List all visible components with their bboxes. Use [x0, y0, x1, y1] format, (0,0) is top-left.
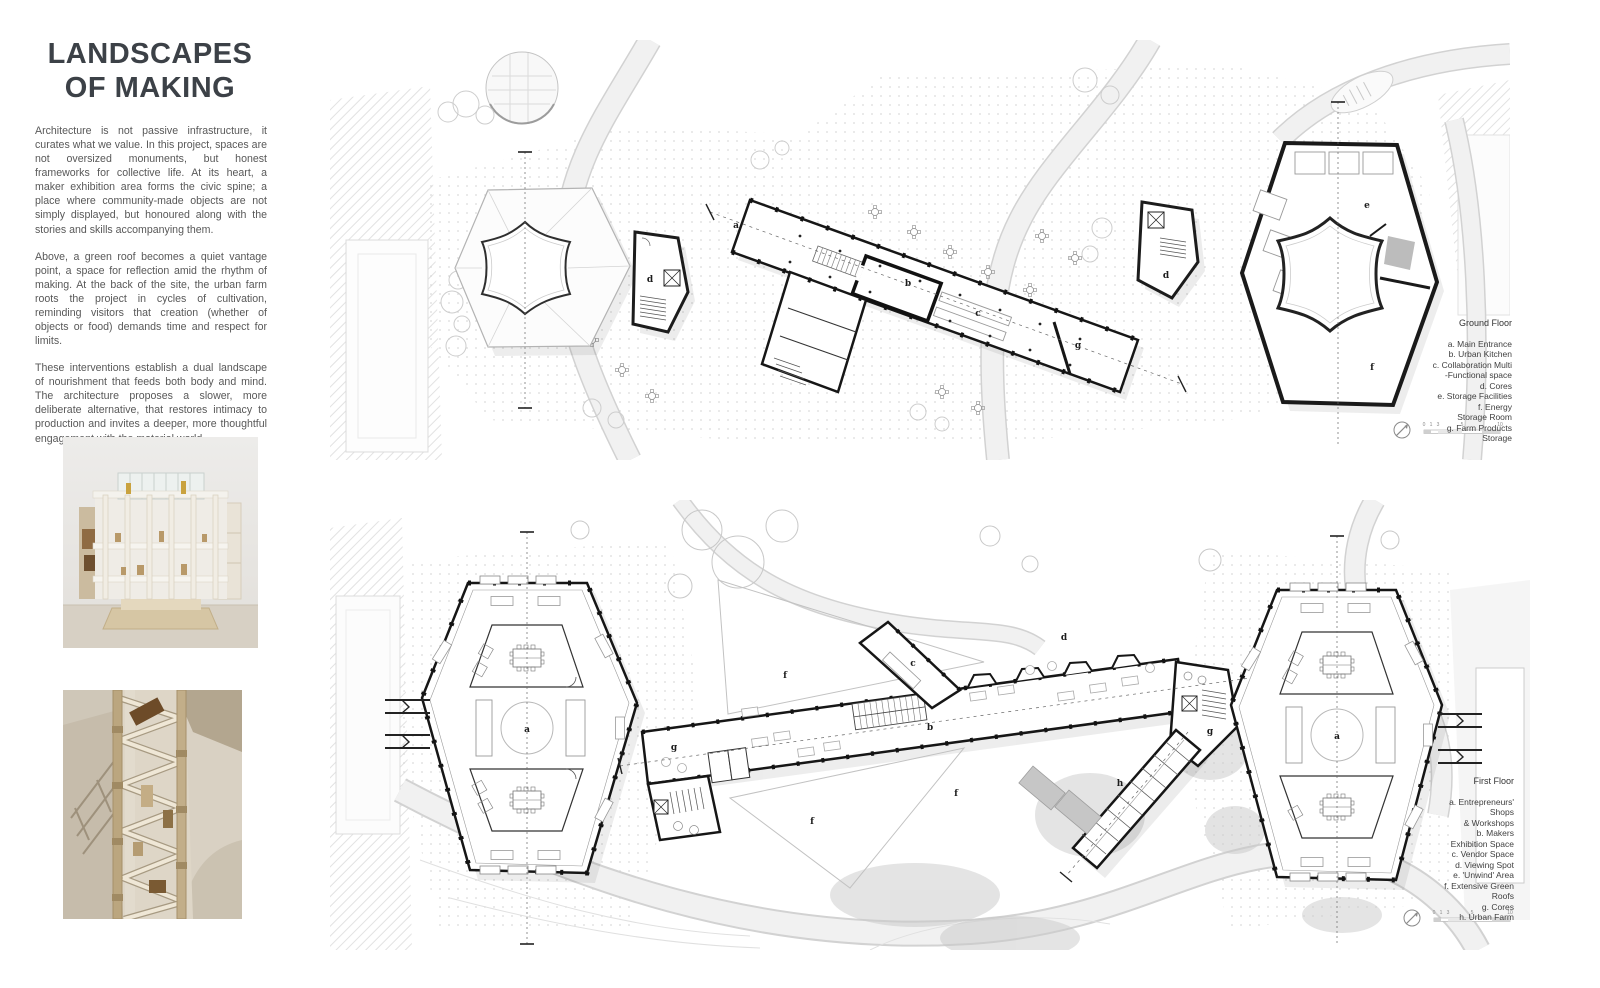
right-pavilion-ground: e f — [1242, 143, 1437, 405]
legend-line: Exhibition Space — [1430, 839, 1514, 850]
intro-paragraph-2: Above, a green roof becomes a quiet vant… — [35, 250, 267, 349]
svg-text:0: 0 — [1423, 422, 1426, 428]
legend-line: a. Main Entrance — [1428, 339, 1512, 350]
room-label-f2: f — [810, 817, 815, 827]
room-label-e-ground: e — [1364, 201, 1370, 211]
north-arrow-icon — [1394, 422, 1410, 438]
title-line-1: LANDSCAPES — [28, 38, 272, 72]
legend-line: d. Cores — [1428, 381, 1512, 392]
intro-paragraph-1: Architecture is not passive infrastructu… — [35, 124, 267, 237]
first-floor-legend: First Floor a. Entrepreneurs'Shops& Work… — [1430, 776, 1514, 923]
ground-floor-legend-title: Ground Floor — [1428, 318, 1512, 329]
legend-line: Storage Room — [1428, 412, 1512, 423]
north-arrow-icon-first — [1404, 910, 1420, 926]
legend-line: a. Entrepreneurs' — [1430, 797, 1514, 808]
room-label-f3: f — [954, 789, 959, 799]
legend-line: b. Urban Kitchen — [1428, 349, 1512, 360]
model-photo-2 — [63, 690, 242, 919]
legend-line: d. Viewing Spot — [1430, 860, 1514, 871]
model-photo-1 — [63, 437, 258, 648]
legend-line: h. Urban Farm — [1430, 912, 1514, 923]
room-label-b-first: b — [927, 723, 933, 733]
legend-line: c. Collaboration Multi — [1428, 360, 1512, 371]
page-title: LANDSCAPES OF MAKING — [28, 38, 272, 105]
ground-floor-legend: Ground Floor a. Main Entranceb. Urban Ki… — [1428, 318, 1512, 444]
intro-paragraph-3: These interventions establish a dual lan… — [35, 361, 267, 445]
ground-floor-plan-drawing: d — [330, 40, 1510, 460]
intro-text: Architecture is not passive infrastructu… — [35, 124, 267, 459]
legend-line: -Functional space — [1428, 370, 1512, 381]
model-photo-2-image — [63, 690, 242, 919]
first-floor-legend-title: First Floor — [1430, 776, 1514, 787]
room-label-d-right: d — [1163, 271, 1170, 281]
title-line-2: OF MAKING — [28, 72, 272, 106]
legend-line: e. Storage Facilities — [1428, 391, 1512, 402]
legend-line: e. 'Unwind' Area — [1430, 870, 1514, 881]
model-photo-1-image — [63, 437, 258, 648]
legend-line: c. Vendor Space — [1430, 849, 1514, 860]
core-g-left — [648, 776, 720, 840]
first-floor-legend-lines: a. Entrepreneurs'Shops& Workshopsb. Make… — [1430, 797, 1514, 923]
legend-line: g. Farm Products — [1428, 423, 1512, 434]
first-floor-plan-drawing: a — [330, 500, 1530, 950]
room-label-d-first: d — [1061, 633, 1068, 643]
legend-line: b. Makers — [1430, 828, 1514, 839]
legend-line: f. Extensive Green — [1430, 881, 1514, 892]
legend-line: f. Energy — [1428, 402, 1512, 413]
room-label-g-right: g — [1207, 727, 1214, 737]
room-label-c-first: c — [910, 659, 916, 669]
room-label-g-left: g — [671, 743, 678, 753]
room-label-f1: f — [783, 671, 788, 681]
legend-line: g. Cores — [1430, 902, 1514, 913]
room-label-h-first: h — [1117, 779, 1124, 789]
legend-line: Shops — [1430, 807, 1514, 818]
room-label-g-ground: g — [1075, 341, 1082, 351]
vestibule — [1384, 236, 1415, 270]
legend-line: Storage — [1428, 433, 1512, 444]
legend-line: Roofs — [1430, 891, 1514, 902]
legend-line: & Workshops — [1430, 818, 1514, 829]
ground-floor-legend-lines: a. Main Entranceb. Urban Kitchenc. Colla… — [1428, 339, 1512, 444]
round-context-building — [486, 52, 558, 124]
room-label-d-left: d — [647, 275, 654, 285]
